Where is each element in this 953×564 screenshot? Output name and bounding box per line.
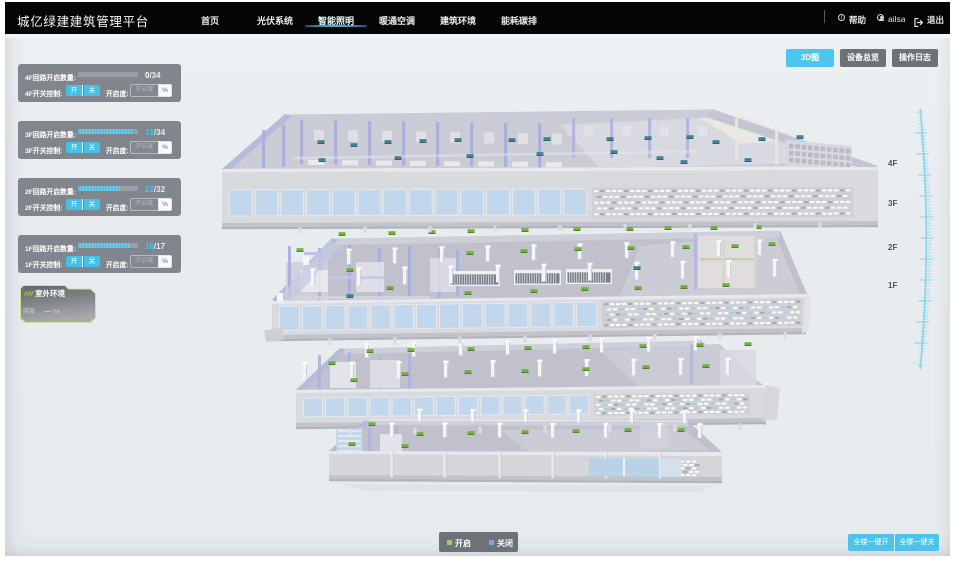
svg-text:1F: 1F [888, 281, 897, 290]
svg-text:3F: 3F [888, 199, 897, 208]
svg-text:2F: 2F [888, 243, 897, 252]
svg-text:照度: 照度 [23, 307, 35, 315]
svg-text:lux: lux [53, 309, 61, 315]
svg-text:—: — [44, 308, 51, 315]
svg-text:室外环境: 室外环境 [35, 288, 65, 298]
svg-text:4F: 4F [888, 159, 897, 168]
